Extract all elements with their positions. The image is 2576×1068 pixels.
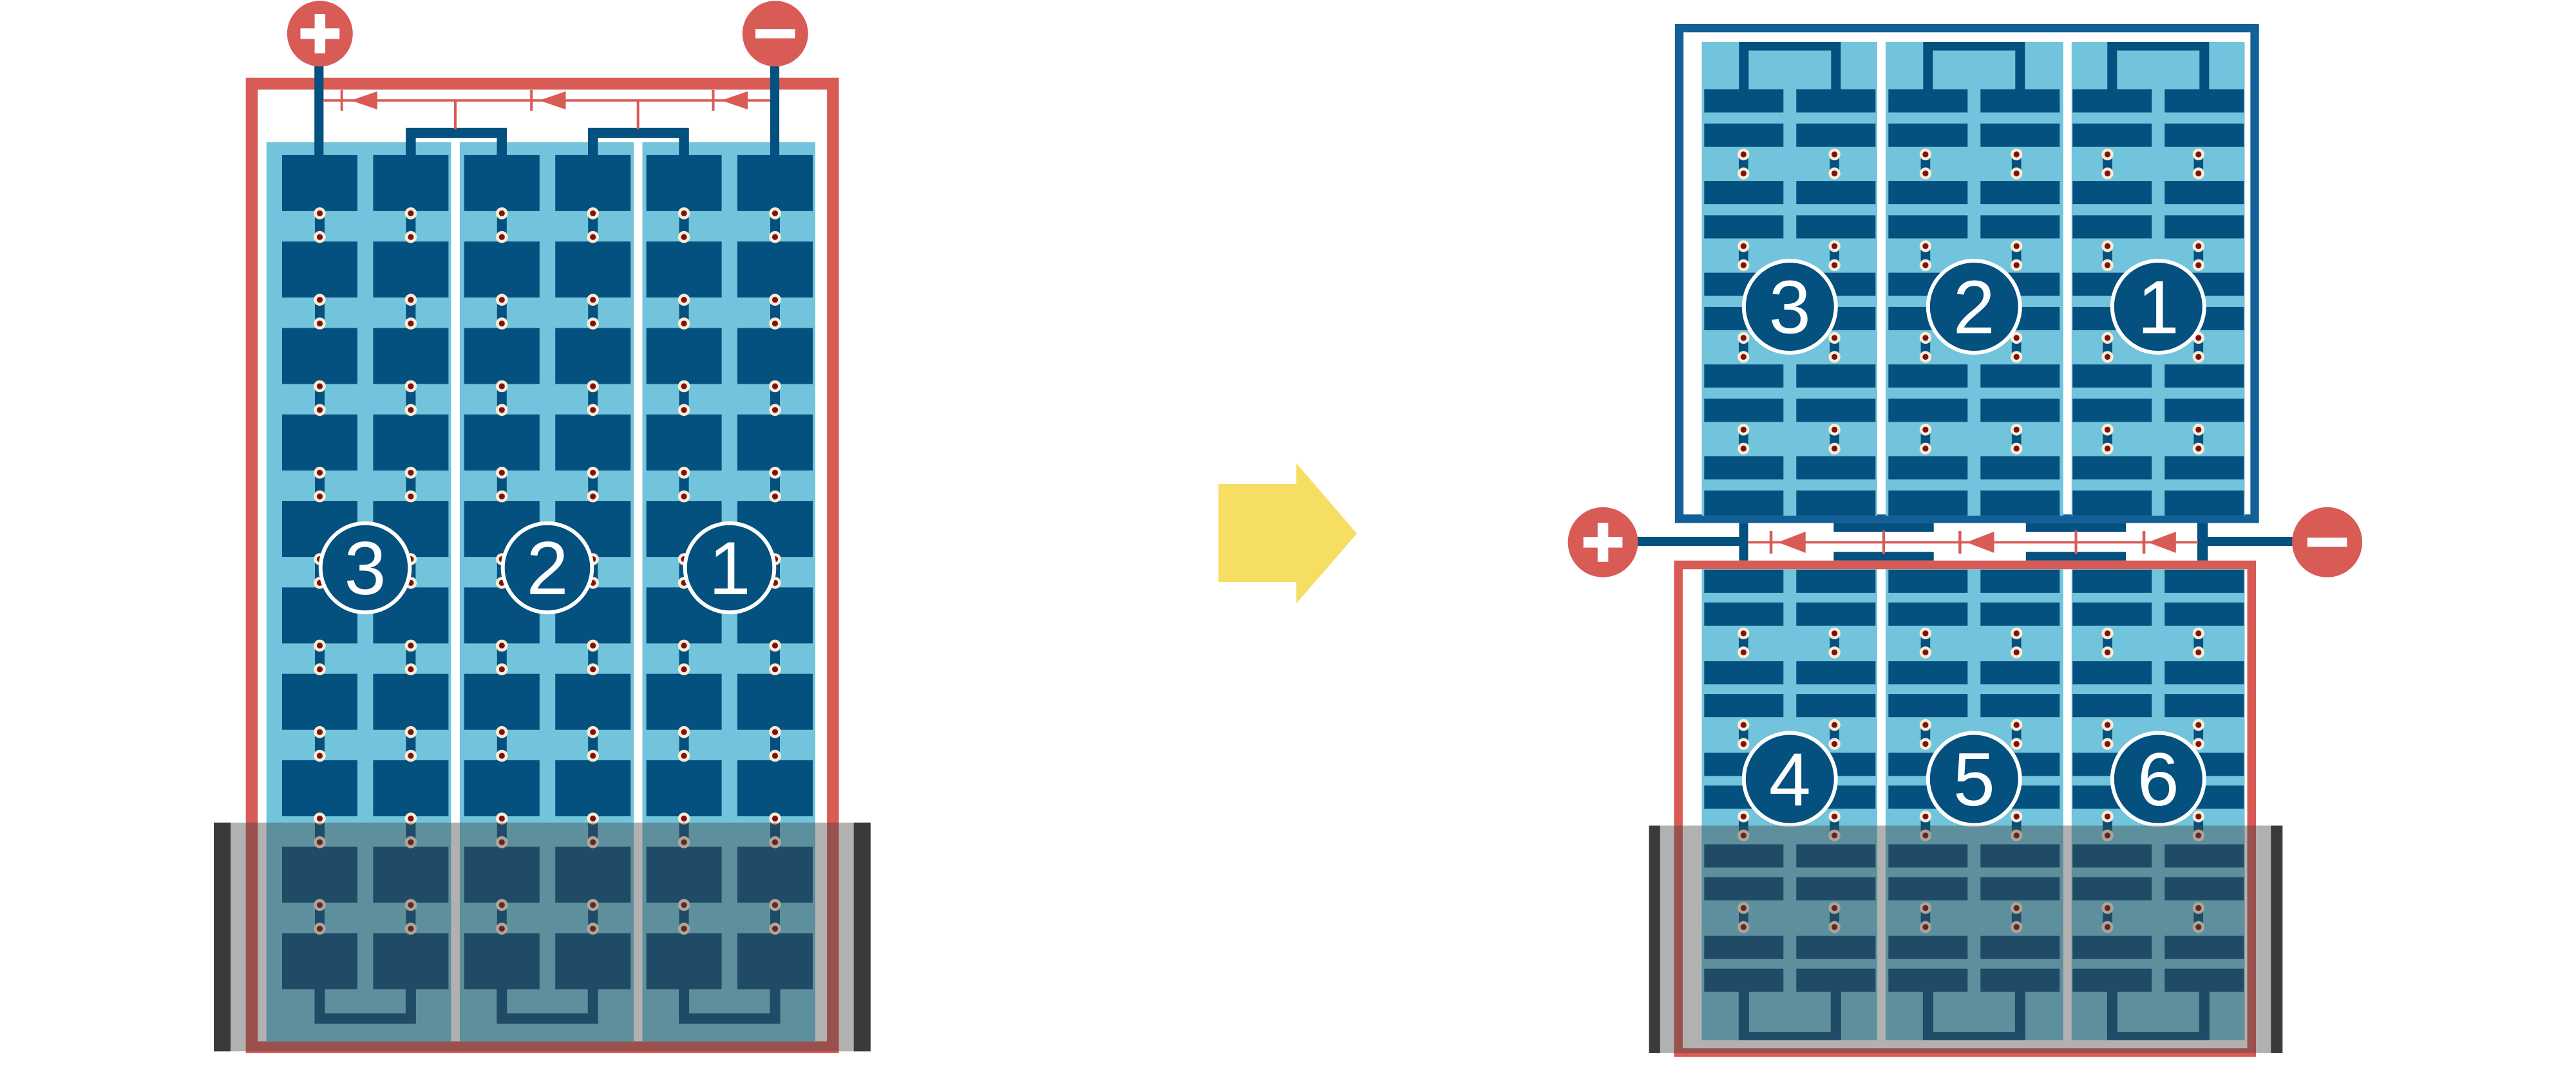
svg-text:5: 5 [1953,737,1995,821]
svg-text:6: 6 [2137,737,2179,821]
svg-text:3: 3 [344,526,386,610]
svg-text:2: 2 [526,526,568,610]
svg-text:3: 3 [1769,265,1811,350]
svg-text:1: 1 [708,526,750,610]
svg-text:2: 2 [1953,265,1995,350]
svg-text:1: 1 [2137,265,2179,350]
svg-text:4: 4 [1769,737,1811,821]
